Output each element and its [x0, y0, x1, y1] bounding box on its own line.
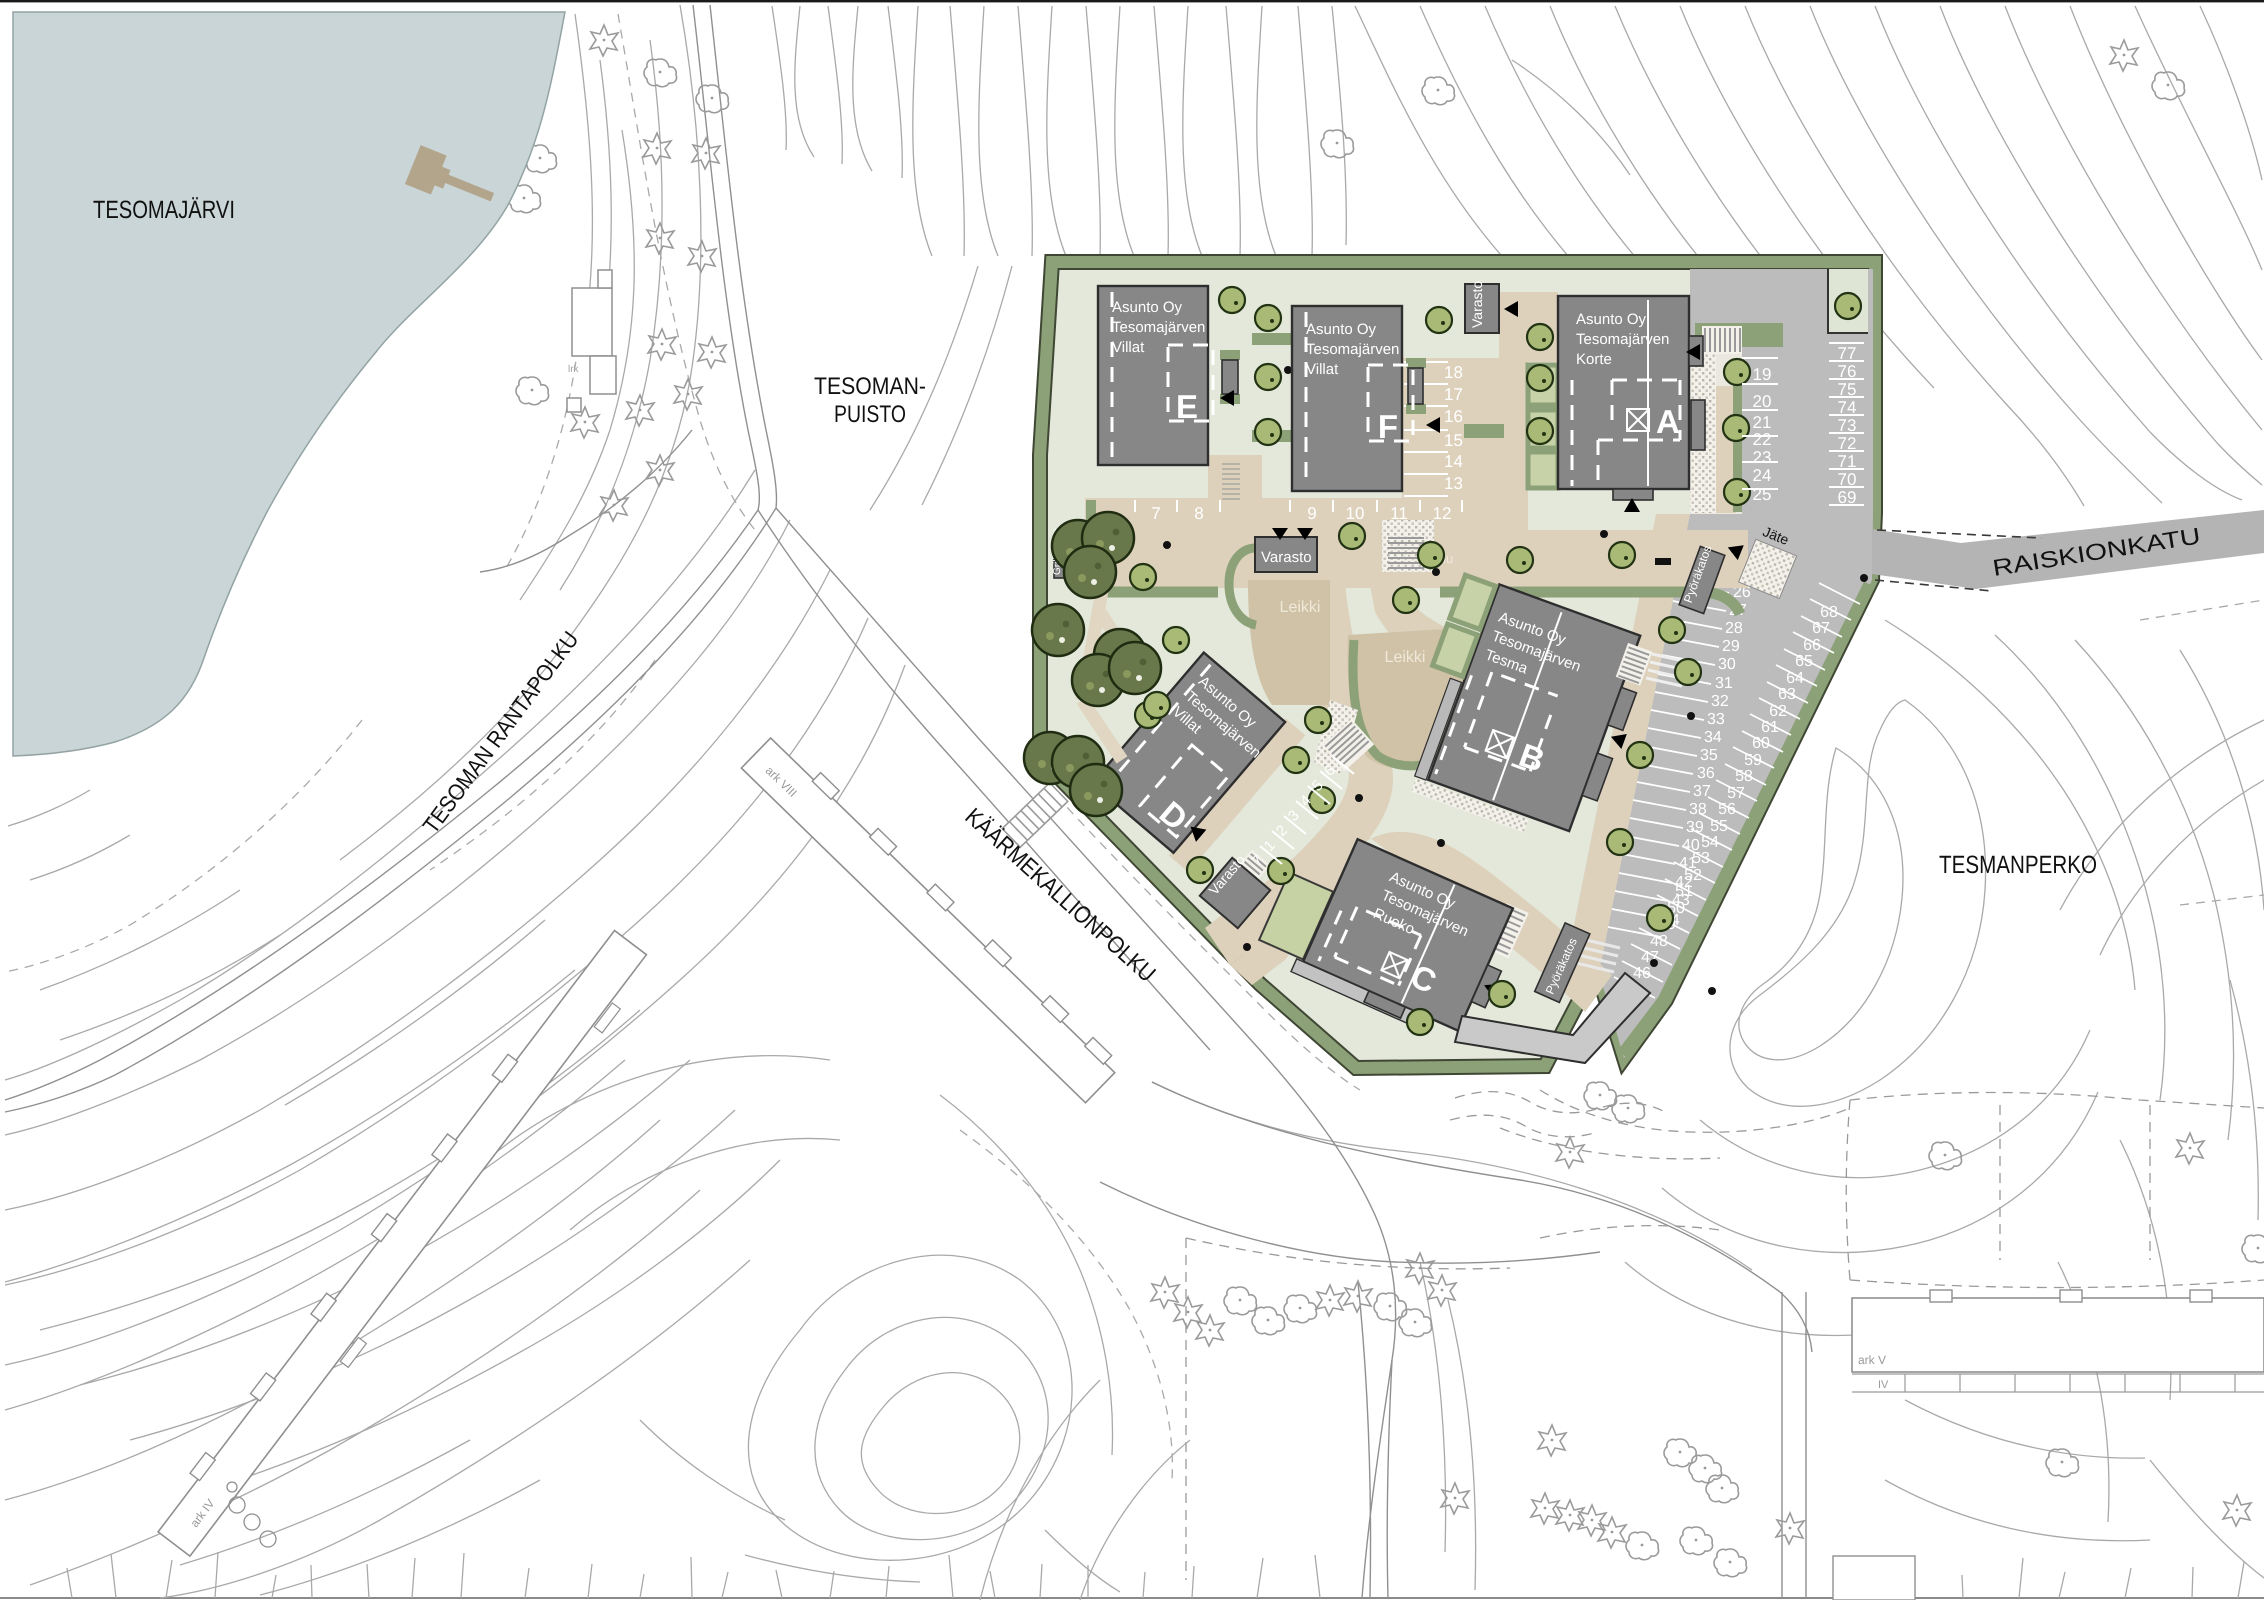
svg-text:75: 75 [1838, 380, 1857, 399]
svg-text:29: 29 [1722, 638, 1740, 655]
svg-text:10: 10 [1346, 504, 1365, 523]
svg-text:51: 51 [1675, 883, 1693, 900]
svg-text:34: 34 [1704, 729, 1722, 746]
svg-text:53: 53 [1692, 850, 1710, 867]
svg-text:65: 65 [1795, 653, 1813, 670]
svg-text:TESMANPERKO: TESMANPERKO [1939, 851, 2097, 879]
svg-text:Leikki: Leikki [1280, 599, 1321, 616]
svg-text:16: 16 [1444, 407, 1463, 426]
svg-text:PUISTO: PUISTO [834, 401, 906, 428]
svg-text:32: 32 [1711, 693, 1729, 710]
svg-text:18: 18 [1444, 363, 1463, 382]
svg-text:Korte: Korte [1576, 351, 1612, 368]
svg-text:23: 23 [1753, 448, 1772, 467]
svg-text:12: 12 [1433, 504, 1452, 523]
svg-text:9: 9 [1307, 504, 1316, 523]
svg-text:61: 61 [1761, 719, 1779, 736]
svg-text:22: 22 [1753, 430, 1772, 449]
svg-text:60: 60 [1752, 735, 1770, 752]
svg-text:59: 59 [1744, 752, 1762, 769]
svg-text:57: 57 [1727, 785, 1745, 802]
svg-text:56: 56 [1718, 801, 1736, 818]
svg-text:Asunto Oy: Asunto Oy [1306, 321, 1377, 338]
svg-text:ark V: ark V [1858, 1353, 1886, 1367]
svg-text:Varasto: Varasto [1469, 281, 1485, 328]
svg-text:IV: IV [1878, 1379, 1889, 1391]
svg-text:8: 8 [1194, 504, 1203, 523]
svg-text:25: 25 [1753, 485, 1772, 504]
svg-text:F: F [1378, 408, 1398, 445]
svg-text:58: 58 [1735, 768, 1753, 785]
svg-text:35: 35 [1700, 747, 1718, 764]
svg-text:31: 31 [1715, 675, 1733, 692]
svg-text:Asunto Oy: Asunto Oy [1112, 299, 1183, 316]
svg-text:E: E [1176, 388, 1198, 425]
svg-text:7: 7 [1151, 504, 1160, 523]
svg-text:38: 38 [1689, 801, 1707, 818]
svg-text:64: 64 [1786, 670, 1804, 687]
svg-text:55: 55 [1710, 818, 1728, 835]
svg-text:Tesomajärven: Tesomajärven [1112, 319, 1205, 336]
svg-text:67: 67 [1812, 620, 1830, 637]
svg-text:Leikki: Leikki [1385, 649, 1426, 666]
svg-text:TESOMAJÄRVI: TESOMAJÄRVI [93, 196, 235, 224]
svg-text:33: 33 [1707, 711, 1725, 728]
svg-text:20: 20 [1753, 392, 1772, 411]
svg-text:Villat: Villat [1112, 339, 1145, 356]
svg-text:30: 30 [1718, 656, 1736, 673]
svg-text:A: A [1656, 403, 1680, 440]
svg-text:TESOMAN-: TESOMAN- [814, 373, 926, 400]
svg-text:66: 66 [1803, 637, 1821, 654]
svg-text:70: 70 [1838, 470, 1857, 489]
svg-text:72: 72 [1838, 434, 1857, 453]
svg-text:Tesomajärven: Tesomajärven [1576, 331, 1669, 348]
svg-text:54: 54 [1701, 834, 1719, 851]
svg-text:69: 69 [1838, 488, 1857, 507]
svg-text:73: 73 [1838, 416, 1857, 435]
svg-text:15: 15 [1444, 431, 1463, 450]
svg-text:lrk: lrk [568, 364, 580, 375]
svg-text:Villat: Villat [1306, 361, 1339, 378]
svg-text:48: 48 [1650, 933, 1668, 950]
svg-text:Varasto: Varasto [1261, 549, 1312, 566]
svg-text:19: 19 [1753, 365, 1772, 384]
svg-text:46: 46 [1633, 965, 1651, 982]
svg-text:68: 68 [1820, 604, 1838, 621]
svg-text:28: 28 [1725, 620, 1743, 637]
svg-text:Asunto Oy: Asunto Oy [1576, 311, 1647, 328]
svg-text:14: 14 [1444, 452, 1463, 471]
svg-text:36: 36 [1697, 765, 1715, 782]
svg-text:13: 13 [1444, 474, 1463, 493]
svg-text:17: 17 [1444, 385, 1463, 404]
svg-text:71: 71 [1838, 452, 1857, 471]
svg-text:62: 62 [1769, 703, 1787, 720]
svg-text:24: 24 [1753, 466, 1772, 485]
svg-text:Tesomajärven: Tesomajärven [1306, 341, 1399, 358]
svg-text:37: 37 [1693, 783, 1711, 800]
svg-text:76: 76 [1838, 362, 1857, 381]
svg-text:63: 63 [1778, 686, 1796, 703]
svg-text:74: 74 [1838, 398, 1857, 417]
svg-text:52: 52 [1684, 867, 1702, 884]
svg-text:11: 11 [1390, 504, 1408, 523]
svg-text:77: 77 [1838, 344, 1857, 363]
